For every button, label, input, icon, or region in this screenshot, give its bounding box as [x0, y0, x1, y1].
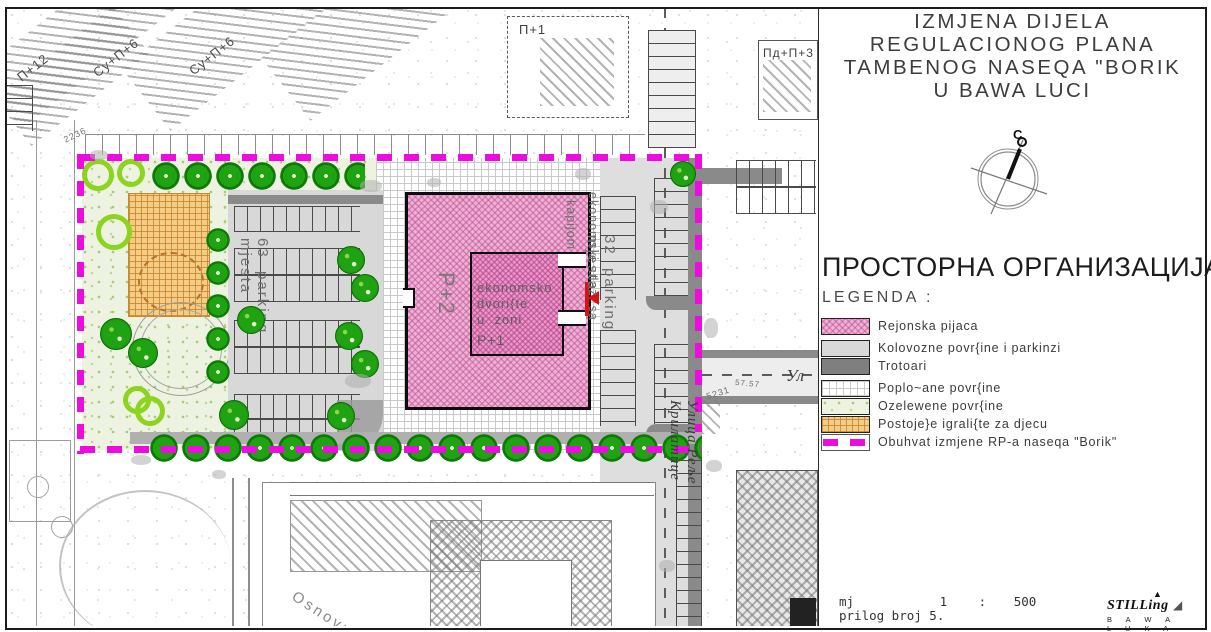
scan-blob [90, 150, 108, 160]
scan-blob [427, 178, 441, 187]
building-label: Пд+П+3 [763, 46, 814, 60]
crosswalk [702, 400, 720, 434]
parking-stalls [234, 206, 360, 232]
tree-column [205, 224, 231, 392]
parking-right-label: 32 parkingmjesta [550, 235, 652, 331]
legend-swatch-igraliste [821, 416, 870, 433]
street-label-vertical: Улица Реље Крилатице [666, 400, 700, 518]
legend-label: Postoje}e igrali{te za djecu [878, 417, 1048, 431]
existing-tree-ring [96, 214, 132, 250]
boundary-dash-top [80, 154, 702, 161]
legend-title: LEGENDA : [822, 289, 933, 307]
scan-blob [575, 168, 591, 180]
logo-text: STILLing [1107, 598, 1169, 613]
scan-blob [212, 470, 226, 479]
logo-hatch-icon: ◢ [1173, 598, 1182, 612]
scan-blob [360, 180, 382, 192]
legend-label: Rejonska pijaca [878, 319, 978, 333]
scan-blob [704, 318, 718, 338]
courtyard-label: u zoni [477, 312, 522, 327]
scale-row: mj 1 : 500 [839, 594, 1036, 609]
logo-roof-icon: ▲ [1153, 589, 1162, 599]
scan-blob [659, 560, 675, 572]
existing-tree-ring [135, 396, 165, 426]
legend-label: Trotoari [878, 359, 927, 373]
tree [327, 402, 355, 430]
legend-panel: IZMJENA DIJELA REGULACIONOG PLANA TAMBEN… [818, 8, 1206, 626]
tree-outline-gray [27, 476, 49, 498]
school-boundary-line [290, 482, 654, 496]
site-plan-map: П+12 Су+П+6 Су+П+6 П+1 Пд+П+3 [7, 8, 818, 626]
parking-stalls [7, 85, 33, 131]
courtyard-label: ekonomsko [477, 280, 552, 295]
boundary-dash-bottom [80, 446, 702, 453]
building-dark-blob [790, 598, 816, 626]
legend-swatch-poplocane [821, 380, 870, 397]
magenta-dash-sample [823, 439, 868, 446]
legend-swatch-ozelenjene [821, 398, 870, 415]
title-line: TAMBENOG NASEQA "BORIK [819, 56, 1206, 79]
courtyard-label: P+1 [477, 332, 505, 348]
building-label: П+1 [519, 22, 546, 37]
scan-blob [345, 374, 371, 388]
title-line: IZMJENA DIJELA [819, 10, 1206, 33]
tree [335, 322, 363, 350]
market-notch [403, 288, 415, 308]
company-logo: ▲ STILLing ◢ B A W A L U K A [1107, 596, 1197, 632]
parking-stalls [234, 346, 360, 374]
existing-tree-ring [82, 159, 114, 191]
street-edge-line [232, 478, 234, 626]
legend-swatch-obuhvat [821, 434, 870, 451]
tree [219, 400, 249, 430]
scan-blob [650, 200, 668, 214]
attachment-number: prilog broj 5. [839, 608, 944, 623]
sidewalk-strip [228, 195, 383, 204]
legend-label: Kolovozne povr{ine i parkinzi [878, 341, 1061, 355]
scale-label: mj [839, 594, 854, 609]
parking-stalls [648, 30, 696, 148]
sidewalk-curb [646, 296, 702, 310]
tree [128, 338, 158, 368]
tree [337, 246, 365, 274]
boundary-dash-left [77, 154, 84, 454]
logo-city-line1: B A W A [1107, 615, 1197, 624]
hatched-building [763, 60, 811, 112]
logo-city-line2: L U K A [1107, 624, 1197, 632]
courtyard-label: dvori{te [477, 296, 528, 311]
legend-swatch-trotoari [821, 358, 870, 375]
tree-row-top [150, 161, 365, 191]
scale-denominator: 500 [1014, 594, 1037, 609]
scan-blob [131, 455, 151, 465]
title-line: U BAWA LUCI [819, 79, 1206, 102]
hatched-building [540, 38, 614, 106]
fence-ticks [85, 134, 645, 155]
parking-stalls [600, 330, 636, 426]
scale-colon: : [979, 594, 987, 609]
title-line: REGULACIONOG PLANA [819, 33, 1206, 56]
parking-stalls [736, 160, 816, 188]
legend-label: Poplo~ane povr{ine [878, 381, 1001, 395]
legend-swatch-rejonska-pijaca [821, 318, 870, 335]
existing-tree-ring [117, 159, 145, 187]
legend-swatch-kolovozne [821, 340, 870, 357]
tree [237, 306, 265, 334]
market-floors-label: P+2 [433, 272, 459, 315]
north-compass-icon: C [961, 126, 1056, 221]
parking-stalls [654, 178, 692, 296]
legend-label: Obuhvat izmjene RP-a naseqa "Borik" [878, 435, 1117, 449]
tree [351, 274, 379, 302]
sidewalk-curb [702, 350, 818, 358]
scale-numerator: 1 [940, 594, 948, 609]
street-edge-line [248, 478, 250, 626]
section-heading: ПРОСТОРНА ОРГАНИЗАЦИЈА [822, 252, 1211, 283]
plan-sheet: П+12 Су+П+6 Су+П+6 П+1 Пд+П+3 [0, 0, 1211, 632]
legend-label: Ozelewene povr{ine [878, 399, 1004, 413]
tree [100, 318, 132, 350]
road-edge-line [36, 120, 37, 626]
scan-blob [706, 460, 722, 472]
street-label-horizontal: Ул [786, 366, 804, 386]
parking-stalls [736, 186, 816, 214]
svg-text:C: C [1013, 127, 1023, 142]
drawing-title: IZMJENA DIJELA REGULACIONOG PLANA TAMBEN… [819, 10, 1206, 102]
school-courtyard [480, 560, 572, 626]
tree [670, 161, 696, 187]
